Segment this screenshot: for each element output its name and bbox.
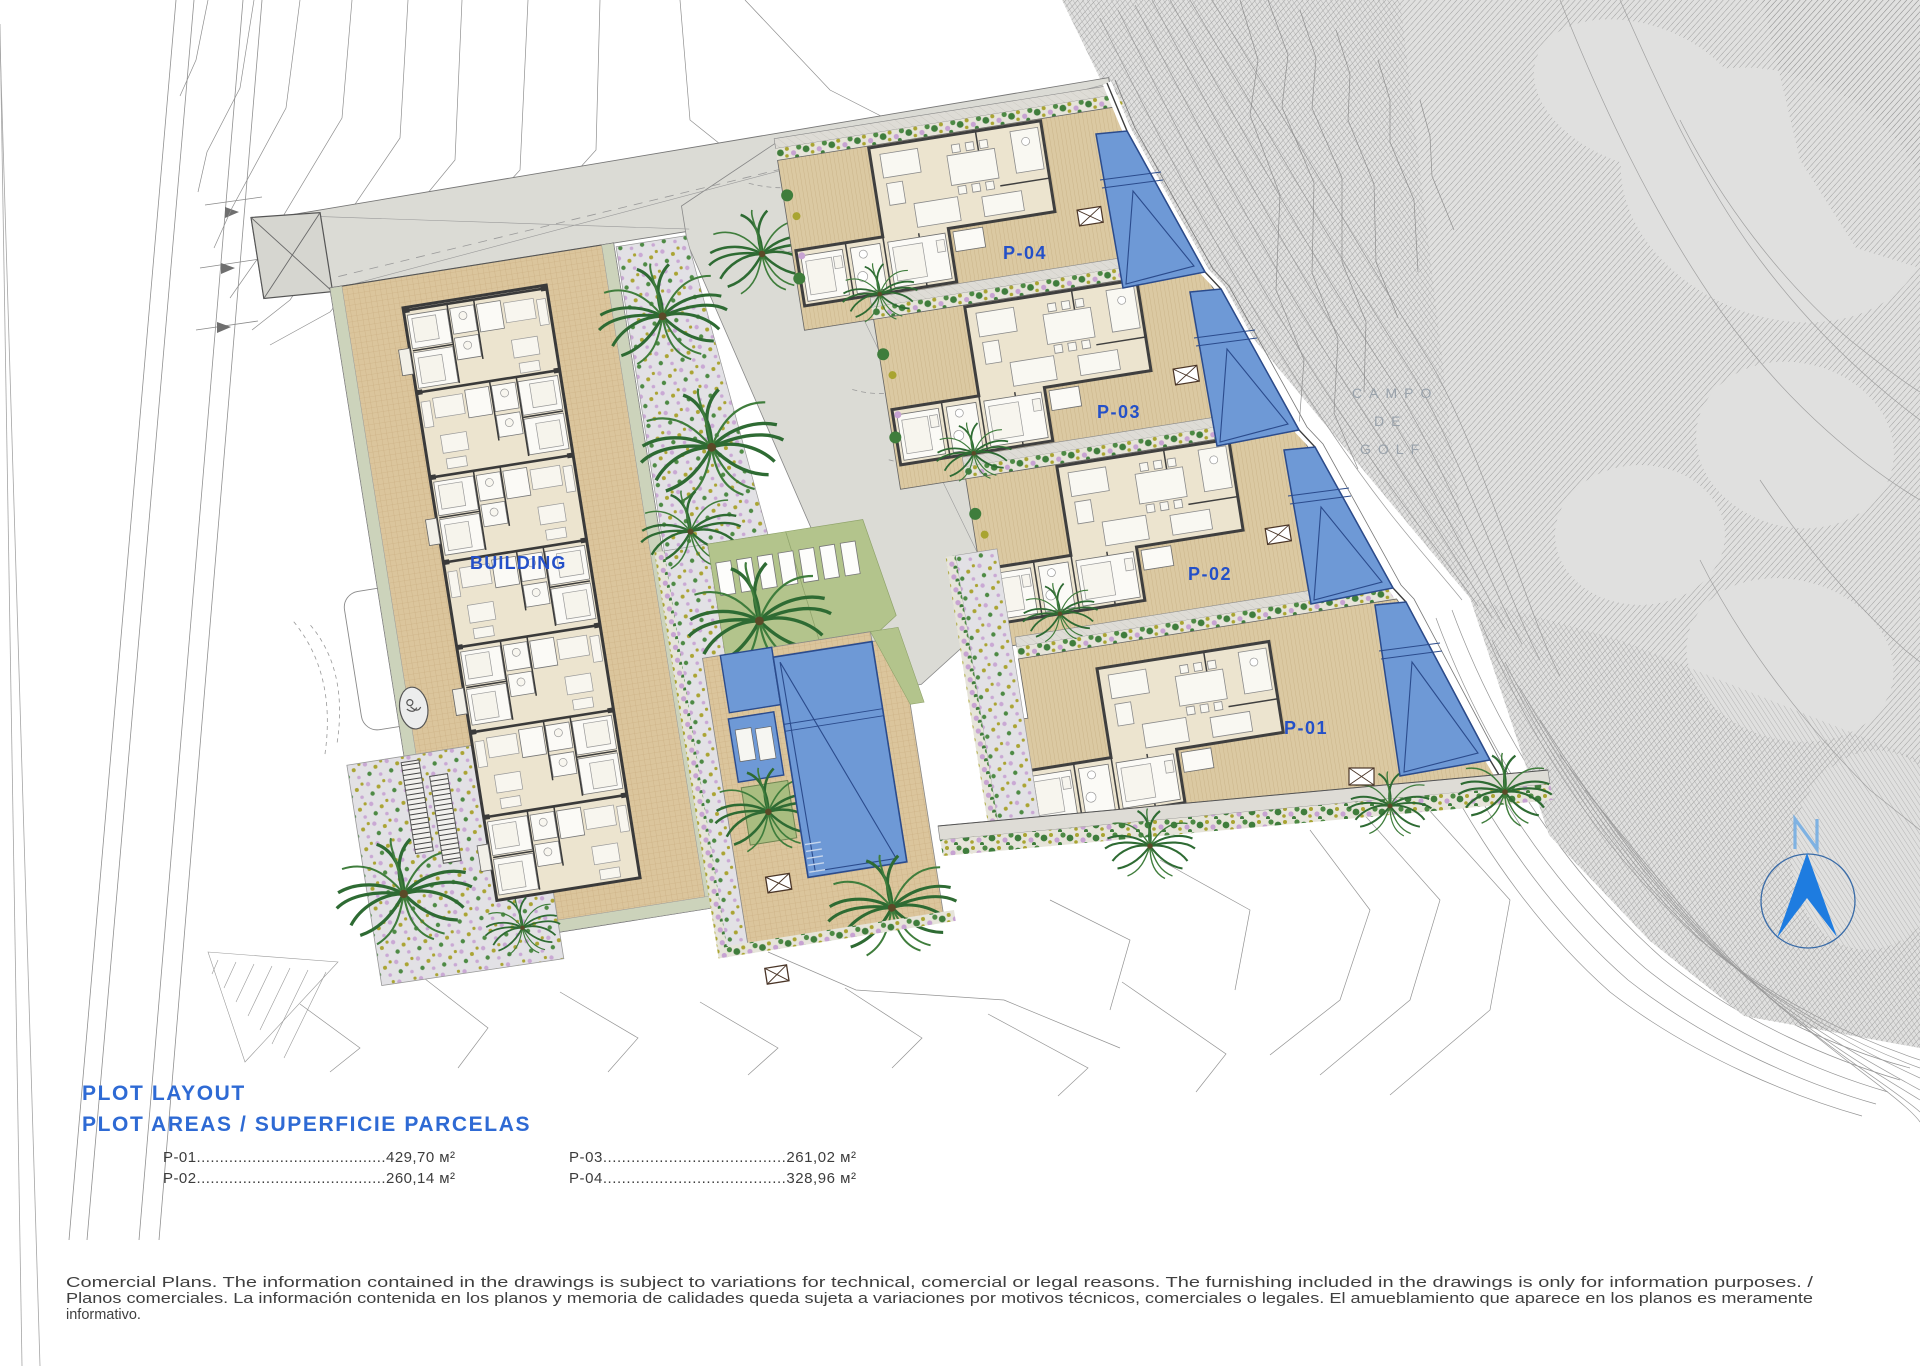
svg-text:P-01: P-01	[1284, 718, 1328, 738]
svg-text:PLOT AREAS / SUPERFICIE PARCEL: PLOT AREAS / SUPERFICIE PARCELAS	[82, 1113, 531, 1136]
svg-text:DE: DE	[1374, 413, 1407, 429]
svg-text:PLOT LAYOUT: PLOT LAYOUT	[82, 1082, 246, 1105]
svg-text:BUILDING: BUILDING	[470, 553, 567, 573]
svg-text:CAMPO: CAMPO	[1352, 385, 1438, 401]
svg-text:Planos comerciales. La informa: Planos comerciales. La información conte…	[66, 1291, 1813, 1307]
svg-text:P-01..........................: P-01....................................…	[163, 1149, 455, 1166]
svg-text:P-03: P-03	[1097, 402, 1141, 422]
svg-text:P-04..........................: P-04....................................…	[569, 1170, 856, 1187]
svg-text:P-02: P-02	[1188, 564, 1232, 584]
svg-text:Comercial Plans. The informati: Comercial Plans. The information contain…	[66, 1275, 1814, 1291]
svg-text:P-03..........................: P-03....................................…	[569, 1149, 856, 1166]
svg-text:informativo.: informativo.	[66, 1307, 141, 1323]
svg-text:GOLF: GOLF	[1360, 441, 1426, 457]
svg-text:P-04: P-04	[1003, 243, 1047, 263]
svg-text:P-02..........................: P-02....................................…	[163, 1170, 455, 1187]
